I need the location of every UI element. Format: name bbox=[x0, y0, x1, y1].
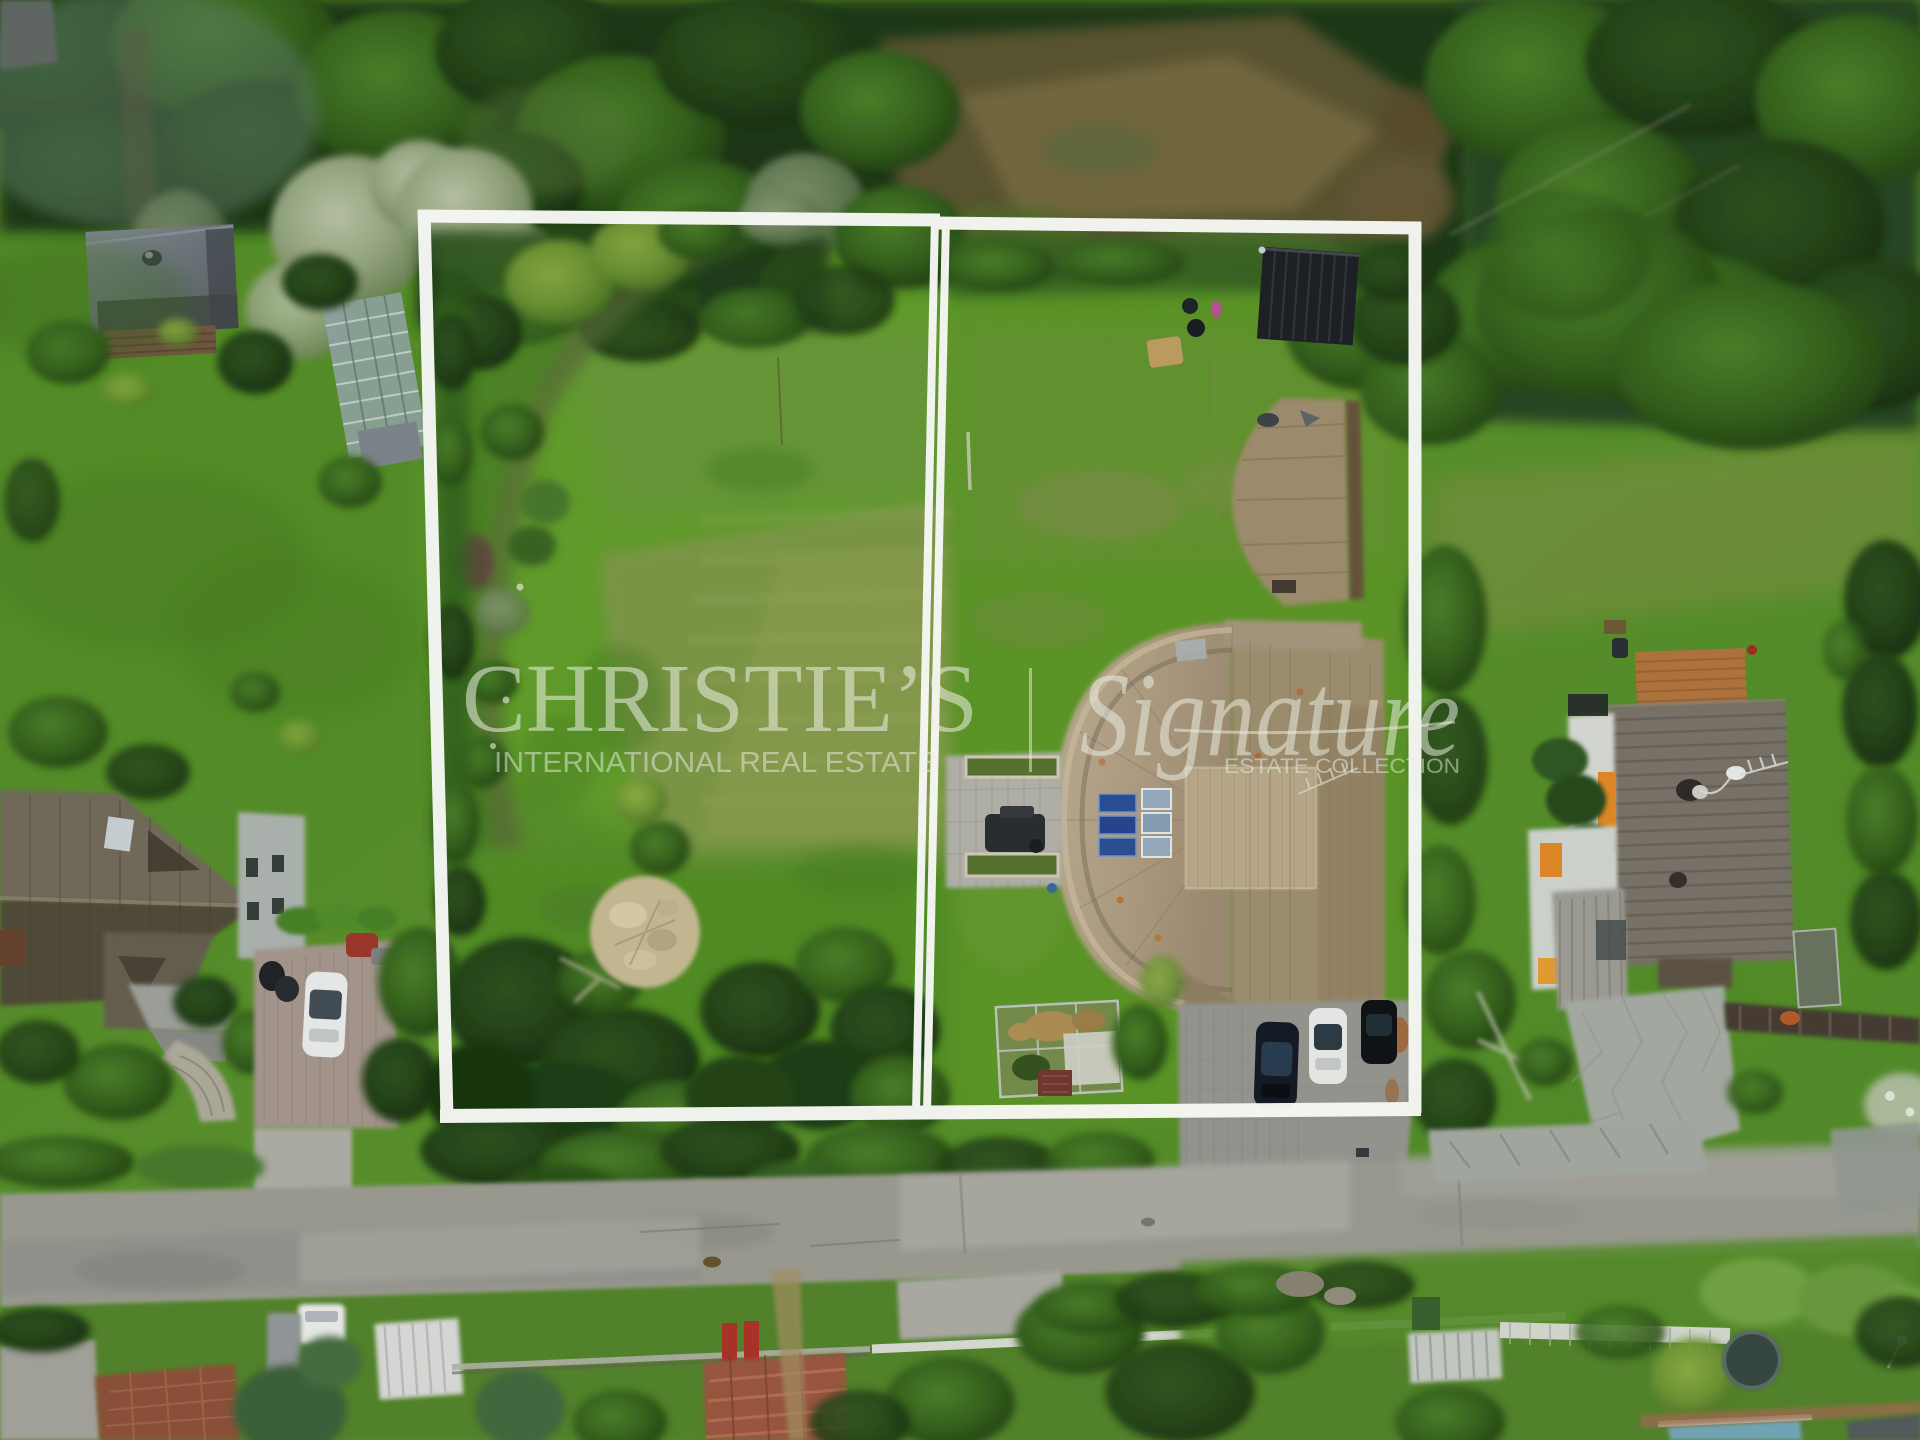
svg-text:INTERNATIONAL REAL ESTATE: INTERNATIONAL REAL ESTATE bbox=[494, 747, 937, 779]
svg-text:ESTATE COLLECTION: ESTATE COLLECTION bbox=[1224, 755, 1460, 778]
svg-text:CHRISTIE’S: CHRISTIE’S bbox=[462, 645, 978, 752]
